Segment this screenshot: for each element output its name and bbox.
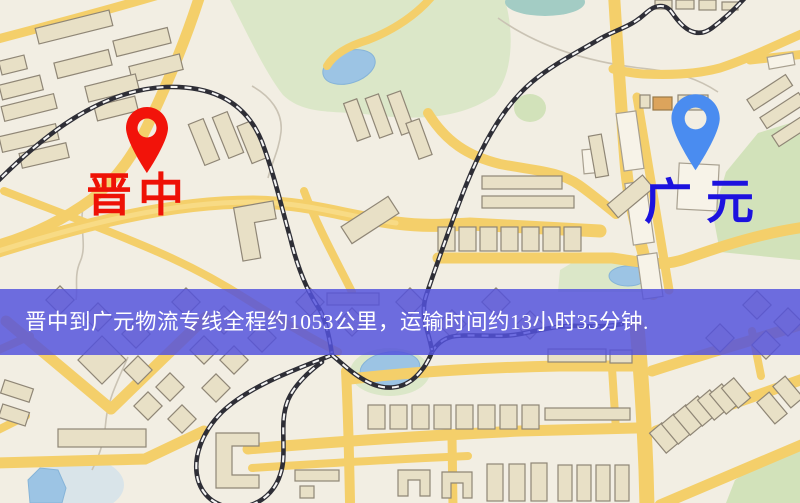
destination-pin-icon [671, 94, 719, 170]
route-info-text: 晋中到广元物流专线全程约1053公里，运输时间约13小时35分钟. [0, 289, 800, 355]
route-info-banner: 晋中到广元物流专线全程约1053公里，运输时间约13小时35分钟. [0, 289, 800, 355]
map-canvas[interactable] [0, 0, 800, 503]
route-map: 晋中 广元 晋中到广元物流专线全程约1053公里，运输时间约13小时35分钟. [0, 0, 800, 503]
